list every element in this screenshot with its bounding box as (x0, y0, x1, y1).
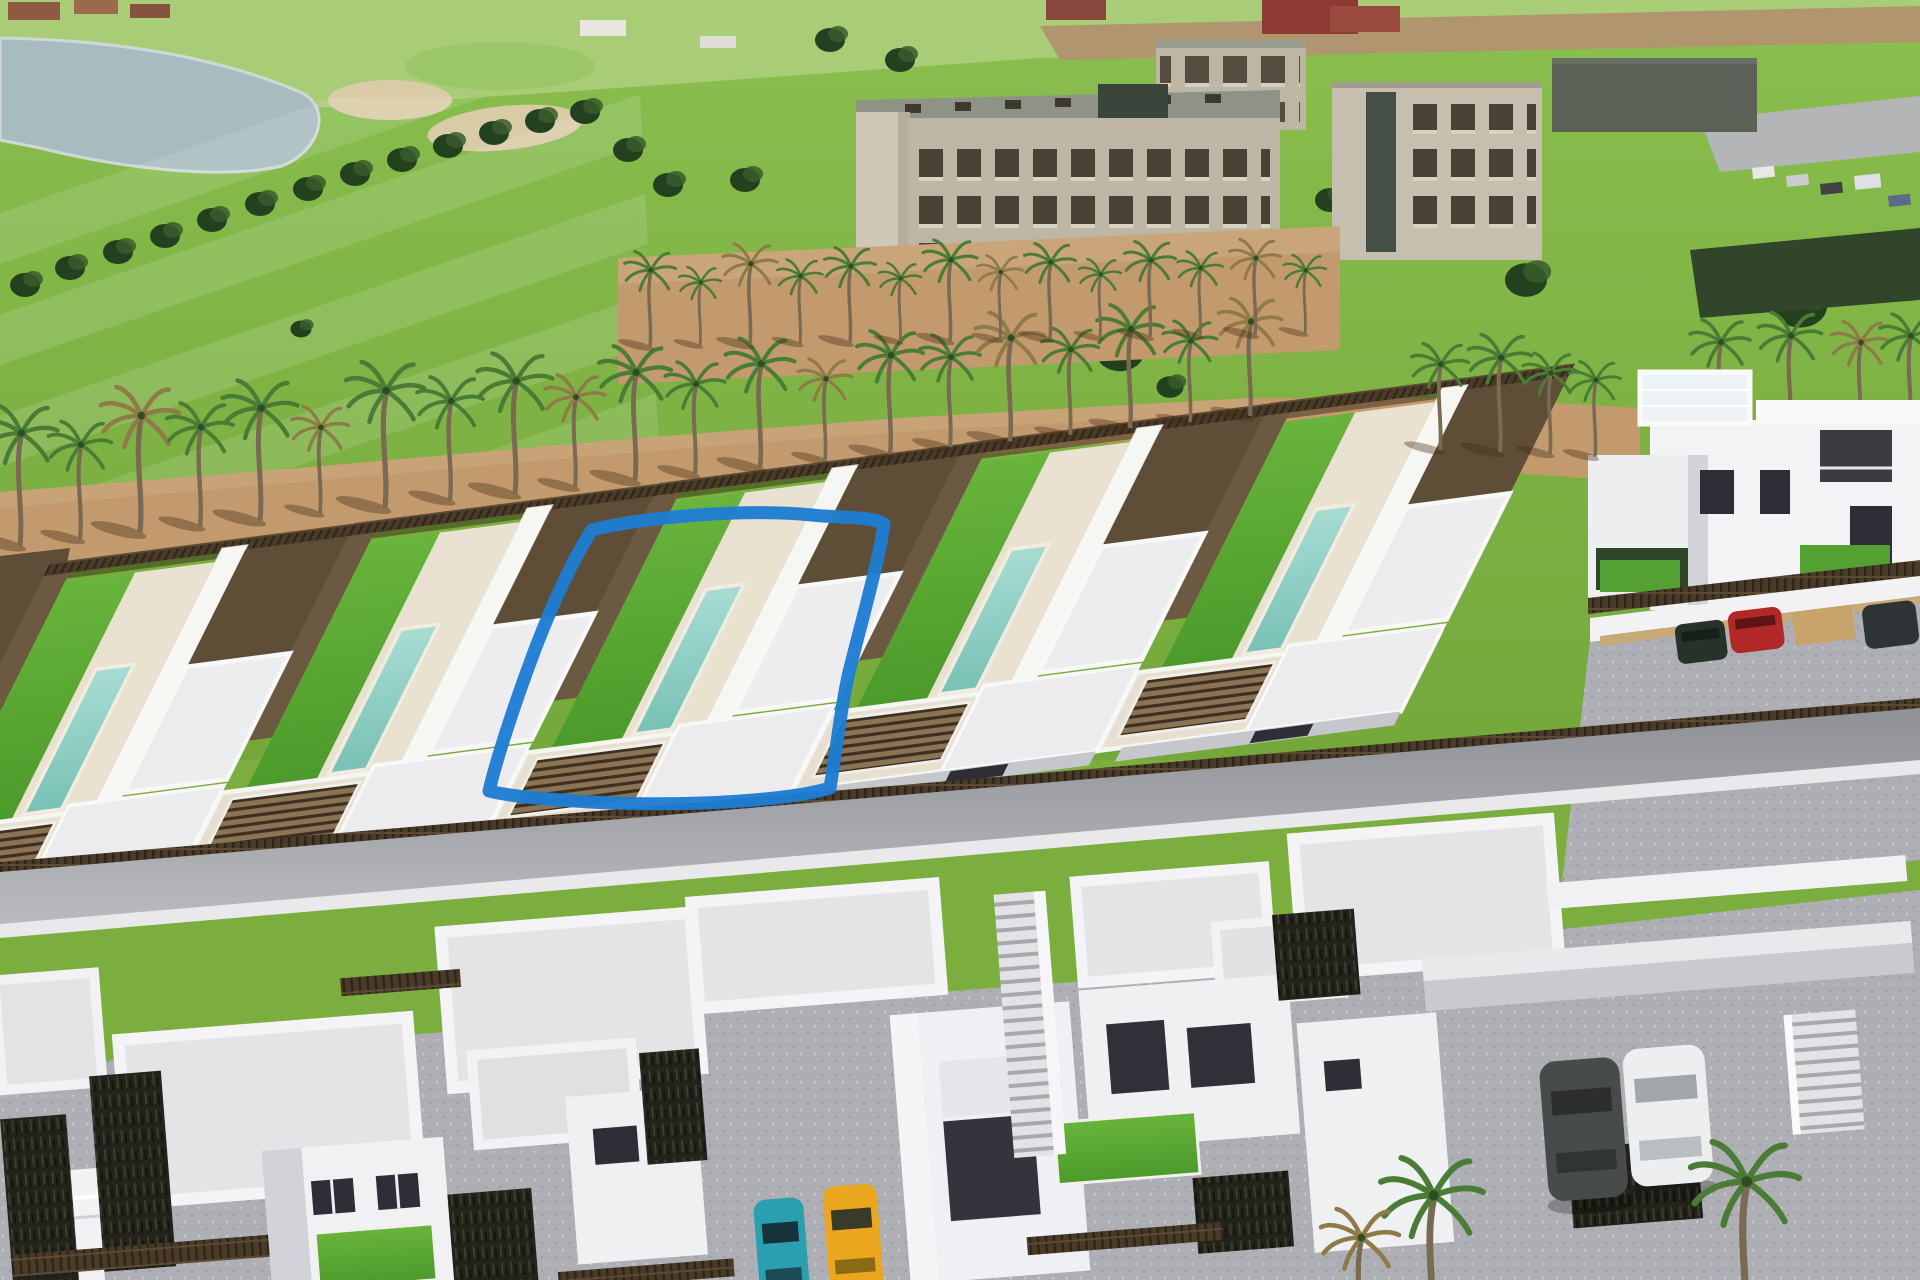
window (1760, 470, 1790, 514)
aerial-photo: ​ (0, 0, 1920, 1280)
car-red (1727, 606, 1786, 654)
far-house-roof (8, 2, 60, 20)
far-house-roof (130, 4, 170, 18)
hedge (1272, 909, 1360, 1001)
stair-core (1366, 92, 1396, 252)
pallet-materials (1792, 605, 1856, 646)
far-house (580, 20, 626, 36)
lawn (1054, 1112, 1200, 1185)
roof (685, 877, 948, 1015)
far-house-roof (74, 0, 118, 14)
balcony-void (1820, 430, 1892, 482)
far-house (700, 36, 736, 48)
car-black (1861, 600, 1920, 650)
brick-building (1046, 0, 1106, 20)
dark-building (1552, 64, 1757, 132)
lawn (315, 1224, 437, 1280)
hedge (1192, 1171, 1294, 1254)
lawn (1600, 560, 1680, 592)
scene-canvas: ​ (0, 0, 1920, 1280)
roof-terrace (1640, 372, 1750, 424)
window (1324, 1059, 1362, 1092)
window (1106, 1020, 1169, 1094)
window (593, 1126, 640, 1165)
staircase-short (1783, 1010, 1864, 1135)
putting-green (405, 42, 595, 90)
brick-building (1330, 6, 1400, 32)
hedge (89, 1071, 176, 1272)
hedge (639, 1048, 708, 1164)
garage-void (1187, 1023, 1256, 1088)
hedge (447, 1188, 540, 1280)
window (1700, 470, 1734, 514)
